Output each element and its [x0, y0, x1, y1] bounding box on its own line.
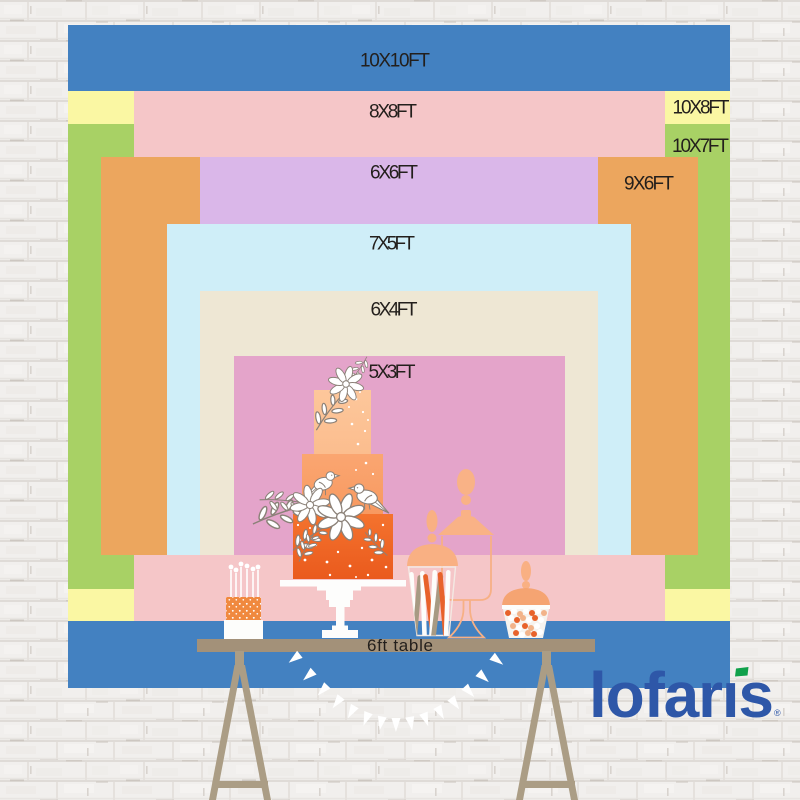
svg-text:10X7FT: 10X7FT — [672, 136, 729, 157]
svg-text:10X10FT: 10X10FT — [360, 51, 430, 72]
svg-text:6ft table: 6ft table — [367, 636, 433, 655]
svg-text:6X4FT: 6X4FT — [371, 300, 418, 321]
svg-text:9X6FT: 9X6FT — [624, 174, 674, 195]
svg-text:8X8FT: 8X8FT — [369, 102, 417, 123]
svg-text:®: ® — [774, 708, 781, 718]
svg-text:7X5FT: 7X5FT — [369, 234, 415, 255]
svg-text:6X6FT: 6X6FT — [370, 163, 418, 184]
svg-text:5X3FT: 5X3FT — [369, 362, 416, 383]
svg-text:10X8FT: 10X8FT — [673, 98, 730, 119]
